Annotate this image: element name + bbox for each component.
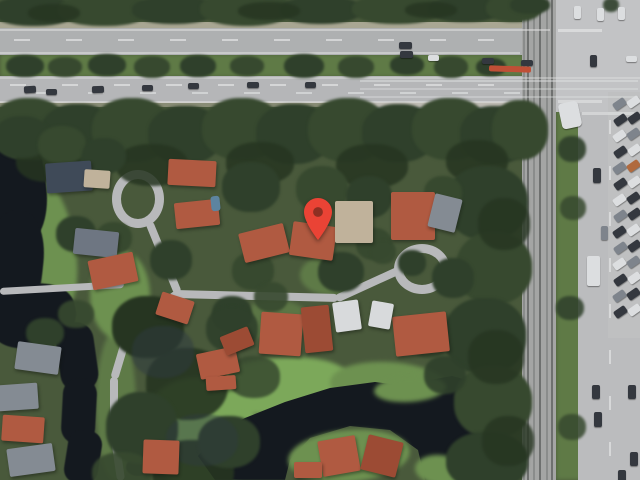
house xyxy=(1,415,45,444)
tree xyxy=(390,55,424,75)
map-pin[interactable] xyxy=(304,198,332,245)
tree xyxy=(38,126,86,164)
lane-marking xyxy=(430,39,446,41)
car xyxy=(630,452,638,466)
lane-marking xyxy=(478,84,494,86)
car xyxy=(597,8,604,21)
tree xyxy=(558,414,586,440)
tree xyxy=(603,0,619,12)
house xyxy=(73,228,119,258)
tree xyxy=(482,416,534,466)
car xyxy=(46,89,57,95)
house xyxy=(294,462,322,478)
house xyxy=(0,383,39,412)
house xyxy=(142,439,179,474)
tree xyxy=(238,2,300,20)
lane-marking xyxy=(274,39,290,41)
car xyxy=(601,226,608,240)
lane-marking xyxy=(582,112,634,115)
lane-marking xyxy=(326,39,342,41)
house xyxy=(301,305,334,354)
car xyxy=(574,6,581,19)
tree xyxy=(405,2,457,18)
lane-marking xyxy=(114,84,130,86)
tree xyxy=(560,196,586,220)
house xyxy=(167,159,216,187)
lane-marking xyxy=(166,84,182,86)
car xyxy=(594,412,602,427)
lane-marking xyxy=(426,84,442,86)
lane-marking xyxy=(244,92,260,94)
house xyxy=(332,299,362,332)
lane-marking xyxy=(322,84,338,86)
house xyxy=(391,192,435,240)
house xyxy=(392,311,450,356)
lane-marking xyxy=(0,52,520,54)
lane-marking xyxy=(609,350,611,364)
lane-marking xyxy=(66,39,82,41)
house xyxy=(368,300,394,329)
lane-marking xyxy=(222,39,238,41)
tree xyxy=(254,282,288,312)
pin-body xyxy=(304,198,332,240)
tree xyxy=(432,258,474,298)
lane-marking xyxy=(296,92,312,94)
house xyxy=(83,169,110,189)
house xyxy=(206,375,237,391)
car xyxy=(24,86,36,94)
lane-marking xyxy=(140,92,156,94)
tree xyxy=(88,54,126,76)
tree xyxy=(468,330,524,384)
lane-marking xyxy=(374,84,390,86)
rail-track xyxy=(533,0,535,480)
tree xyxy=(28,4,80,22)
satellite-map[interactable] xyxy=(0,0,640,480)
tree xyxy=(230,56,264,76)
pin-hole xyxy=(313,207,323,217)
tree xyxy=(558,136,586,162)
car xyxy=(593,168,601,183)
lane-marking xyxy=(400,92,416,94)
car xyxy=(521,60,533,66)
tree xyxy=(424,356,466,394)
car xyxy=(305,82,316,88)
tree xyxy=(398,250,426,276)
lane-marking xyxy=(609,442,611,456)
rail-track xyxy=(546,0,548,480)
lane-marking xyxy=(609,258,611,272)
lane-marking xyxy=(609,396,611,410)
car xyxy=(399,42,412,49)
lane-marking xyxy=(192,92,208,94)
lane-marking xyxy=(348,92,364,94)
lane-marking xyxy=(62,84,78,86)
house xyxy=(317,435,361,477)
lane-marking xyxy=(360,88,638,90)
car xyxy=(587,256,600,286)
lane-marking xyxy=(360,80,638,82)
pool xyxy=(210,196,221,212)
tree xyxy=(48,57,82,77)
tree xyxy=(134,56,170,78)
lane-marking xyxy=(14,39,30,41)
car xyxy=(92,86,104,93)
car xyxy=(592,385,600,399)
lane-marking xyxy=(452,92,468,94)
tree xyxy=(180,55,216,77)
lane-marking xyxy=(609,166,611,180)
lane-marking xyxy=(478,39,494,41)
tree xyxy=(338,56,374,78)
pin-icon xyxy=(304,198,332,240)
lane-marking xyxy=(609,120,611,134)
lane-marking xyxy=(504,92,520,94)
tree xyxy=(478,198,530,250)
car xyxy=(626,56,637,62)
lane-marking xyxy=(609,304,611,318)
tree xyxy=(222,162,280,212)
tree xyxy=(370,240,396,264)
house xyxy=(238,223,290,263)
tree xyxy=(284,54,324,78)
lane-marking xyxy=(0,29,550,31)
car xyxy=(142,85,153,91)
lane-marking xyxy=(270,84,286,86)
tree xyxy=(434,56,468,78)
lane-marking xyxy=(0,77,640,79)
rail-track xyxy=(539,0,541,480)
car xyxy=(618,470,626,480)
rail-track xyxy=(551,0,553,480)
tree xyxy=(132,326,194,378)
house xyxy=(6,443,55,477)
lane-marking xyxy=(218,84,234,86)
car xyxy=(428,55,439,61)
tree xyxy=(556,296,584,320)
lane-marking xyxy=(170,39,186,41)
lane-marking xyxy=(558,29,602,32)
car xyxy=(628,385,636,399)
house xyxy=(335,201,373,243)
car xyxy=(400,51,413,58)
lane-marking xyxy=(609,212,611,226)
tree xyxy=(150,240,192,280)
lane-marking xyxy=(378,39,394,41)
house xyxy=(14,341,61,375)
tree xyxy=(58,300,94,328)
tree xyxy=(6,55,44,77)
car xyxy=(618,7,625,20)
car xyxy=(188,83,199,89)
house xyxy=(259,312,304,357)
car xyxy=(247,82,259,88)
car xyxy=(482,58,494,64)
lane-marking xyxy=(118,39,134,41)
car xyxy=(590,55,597,67)
lane-marking xyxy=(360,96,638,98)
